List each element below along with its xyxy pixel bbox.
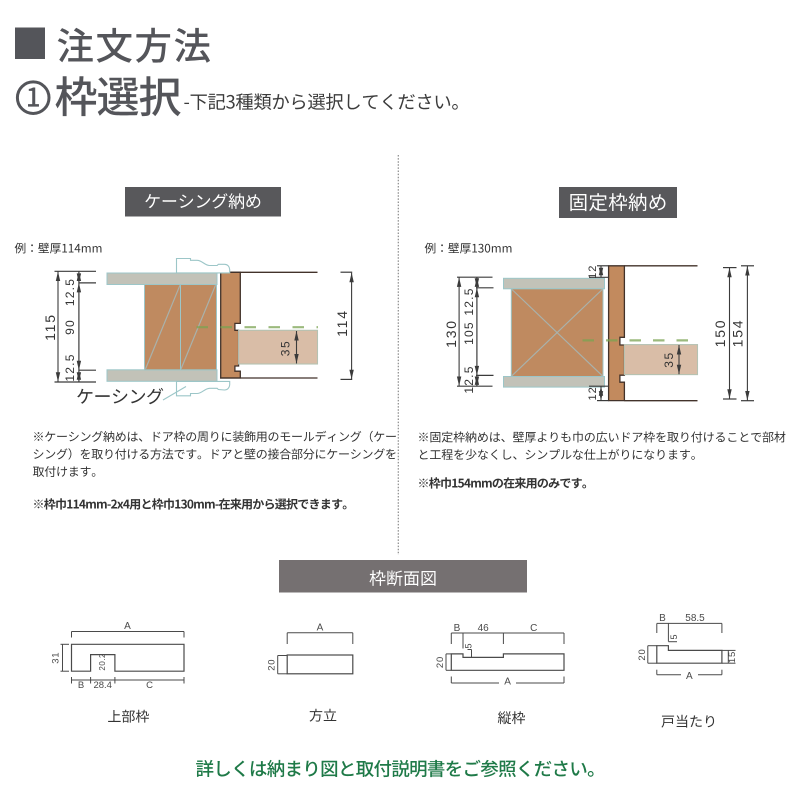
svg-text:12.5: 12.5	[63, 278, 77, 306]
svg-text:A: A	[317, 623, 324, 634]
svg-text:15: 15	[727, 651, 738, 663]
svg-text:150: 150	[712, 319, 728, 348]
svg-text:12.5: 12.5	[63, 353, 77, 381]
svg-text:B: B	[454, 623, 461, 634]
svg-text:A: A	[124, 621, 131, 632]
svg-text:114: 114	[334, 309, 350, 337]
svg-text:A: A	[504, 677, 511, 688]
svg-text:12.5: 12.5	[462, 287, 476, 315]
svg-text:115: 115	[42, 313, 58, 341]
svg-text:A: A	[686, 671, 693, 682]
svg-text:B: B	[78, 680, 84, 691]
svg-text:28.4: 28.4	[93, 680, 112, 691]
svg-text:35: 35	[662, 351, 676, 367]
svg-text:130: 130	[443, 319, 459, 348]
svg-text:20: 20	[267, 659, 278, 671]
svg-text:12.5: 12.5	[462, 365, 476, 393]
svg-text:105: 105	[462, 321, 476, 345]
svg-text:58.5: 58.5	[685, 613, 705, 624]
svg-text:46: 46	[478, 623, 490, 634]
svg-text:12: 12	[587, 386, 599, 400]
svg-text:154: 154	[730, 319, 746, 348]
svg-text:20: 20	[435, 656, 446, 668]
svg-text:5: 5	[669, 634, 679, 639]
svg-text:12: 12	[587, 265, 599, 279]
svg-text:C: C	[146, 680, 153, 691]
svg-text:90: 90	[63, 319, 77, 335]
svg-text:35: 35	[279, 340, 293, 356]
svg-text:B: B	[659, 613, 666, 624]
svg-text:20.2: 20.2	[98, 653, 107, 671]
svg-text:5: 5	[463, 643, 473, 648]
svg-text:20: 20	[637, 648, 648, 660]
svg-text:31: 31	[51, 652, 62, 664]
svg-text:C: C	[530, 623, 537, 634]
